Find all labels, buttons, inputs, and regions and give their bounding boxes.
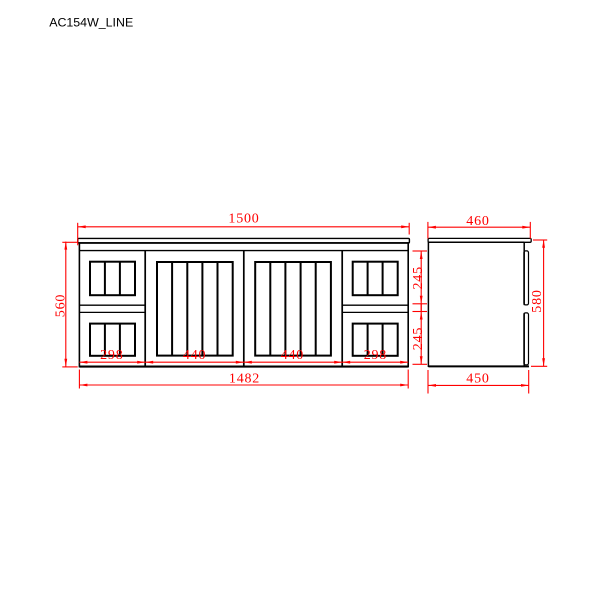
svg-text:1482: 1482 (229, 372, 260, 387)
svg-text:440: 440 (281, 348, 304, 363)
svg-text:580: 580 (530, 289, 545, 312)
svg-text:440: 440 (183, 348, 206, 363)
svg-text:AC154W_LINE: AC154W_LINE (49, 15, 133, 29)
svg-text:1500: 1500 (228, 212, 259, 227)
svg-text:245: 245 (411, 327, 426, 350)
svg-text:245: 245 (411, 266, 426, 289)
svg-text:298: 298 (364, 348, 387, 363)
svg-text:298: 298 (100, 348, 123, 363)
svg-text:450: 450 (466, 372, 489, 387)
svg-text:560: 560 (54, 294, 69, 317)
svg-text:460: 460 (466, 214, 489, 229)
